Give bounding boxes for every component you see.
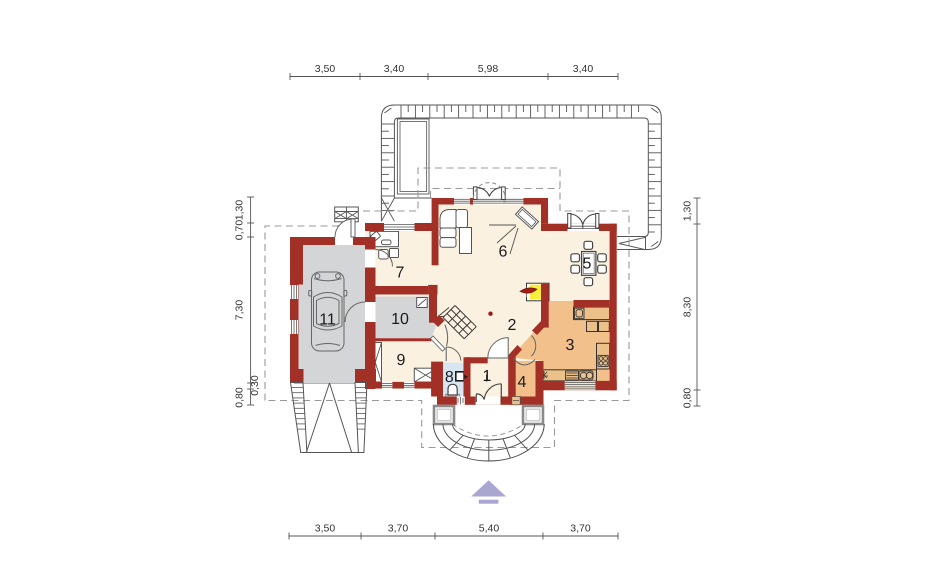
svg-text:5,40: 5,40	[479, 523, 500, 535]
svg-text:4: 4	[518, 374, 527, 391]
svg-text:3,40: 3,40	[384, 63, 405, 75]
svg-text:6: 6	[499, 243, 508, 260]
svg-text:0,80: 0,80	[234, 387, 246, 408]
svg-text:2: 2	[508, 317, 517, 334]
svg-text:0,70: 0,70	[234, 220, 246, 241]
svg-text:7: 7	[396, 264, 405, 281]
svg-text:0,30: 0,30	[249, 375, 261, 396]
svg-text:11: 11	[319, 311, 336, 328]
svg-text:1,30: 1,30	[682, 201, 694, 222]
svg-text:10: 10	[391, 311, 409, 328]
svg-text:3,70: 3,70	[570, 523, 591, 535]
svg-text:3,70: 3,70	[388, 523, 409, 535]
svg-text:1: 1	[483, 368, 492, 385]
svg-text:3: 3	[566, 337, 575, 354]
svg-text:3,50: 3,50	[315, 523, 336, 535]
svg-text:5: 5	[583, 255, 592, 272]
svg-text:8: 8	[445, 369, 454, 386]
svg-text:1,30: 1,30	[234, 200, 246, 221]
svg-text:3,40: 3,40	[573, 63, 594, 75]
svg-text:3,50: 3,50	[315, 63, 336, 75]
svg-text:0,80: 0,80	[682, 388, 694, 409]
svg-text:9: 9	[397, 352, 406, 369]
svg-text:5,98: 5,98	[478, 63, 499, 75]
svg-text:8,30: 8,30	[682, 297, 694, 318]
svg-text:7,30: 7,30	[234, 300, 246, 321]
